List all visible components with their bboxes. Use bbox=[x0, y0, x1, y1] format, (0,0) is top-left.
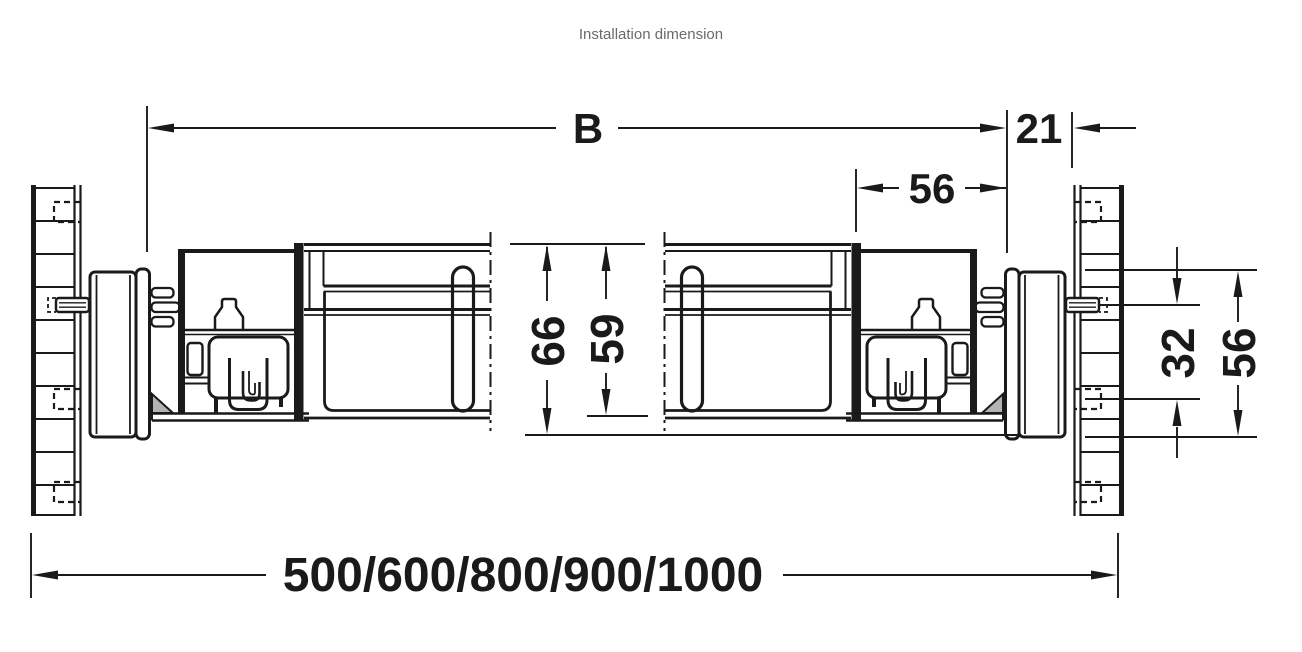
left-assembly bbox=[34, 185, 491, 516]
dim-59-label: 59 bbox=[581, 313, 633, 364]
dim-32-label: 32 bbox=[1152, 327, 1204, 378]
fixing-screw bbox=[48, 298, 89, 312]
dim-b-label: B bbox=[573, 105, 603, 152]
dim-32: 32 bbox=[1152, 247, 1204, 458]
adjuster-plug bbox=[215, 299, 243, 330]
dim-b: B bbox=[147, 105, 1007, 253]
coupling-face-plate bbox=[136, 269, 150, 439]
panel-hatch-rungs bbox=[36, 188, 74, 515]
cabinet-panel bbox=[34, 185, 90, 516]
dim-lengths-label: 500/600/800/900/1000 bbox=[283, 549, 763, 602]
rail-slot bbox=[453, 267, 474, 411]
drawer-rail-member bbox=[304, 232, 491, 431]
fixing-bracket-housing bbox=[152, 243, 309, 421]
shaded-wedge bbox=[152, 394, 173, 413]
housing-end-bar bbox=[294, 243, 304, 420]
right-assembly bbox=[665, 185, 1122, 516]
dim-56-right: 56 bbox=[1213, 271, 1265, 436]
tooth-connector bbox=[152, 288, 180, 327]
page-title: Installation dimension bbox=[579, 26, 723, 43]
dim-lengths: 500/600/800/900/1000 bbox=[31, 533, 1118, 602]
coupling bbox=[90, 269, 150, 439]
dim-59: 59 bbox=[581, 245, 648, 416]
dim-56-top-label: 56 bbox=[909, 165, 956, 212]
clamp-hook bbox=[243, 371, 260, 401]
drawing-canvas: B 21 56 66 59 32 bbox=[0, 0, 1302, 652]
roller bbox=[188, 343, 203, 375]
dim-21: 21 bbox=[1016, 105, 1136, 168]
dim-21-label: 21 bbox=[1016, 105, 1063, 152]
dim-66-label: 66 bbox=[522, 315, 574, 366]
installation-dimension-drawing: B 21 56 66 59 32 bbox=[0, 0, 1302, 652]
dim-56-top: 56 bbox=[856, 165, 1006, 232]
dim-56-right-label: 56 bbox=[1213, 327, 1265, 378]
